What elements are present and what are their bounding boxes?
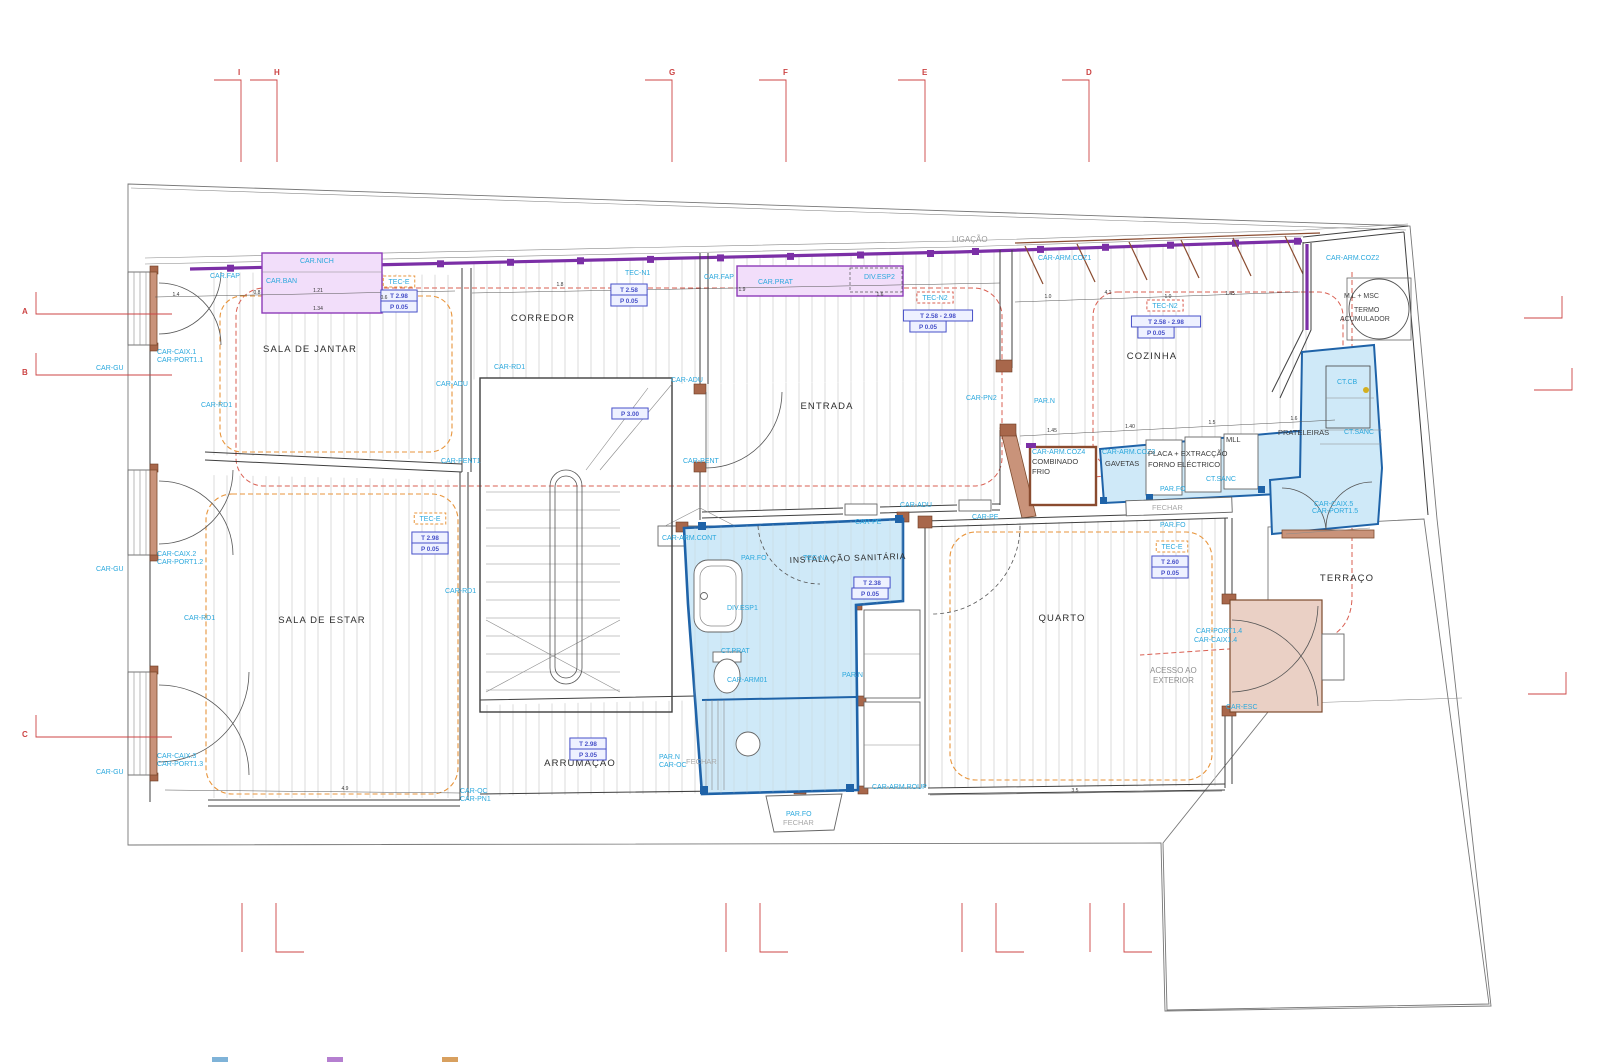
annotation-label: PRATELEIRAS <box>1278 428 1329 437</box>
annotation-label: CAR-ADU <box>900 502 932 509</box>
room-label-cozinha: COZINHA <box>1127 351 1177 362</box>
annotation-label: ACESSO AO <box>1150 666 1197 675</box>
annotation-label: CAR-OC <box>659 762 687 769</box>
annotation-label: CAR-RD1 <box>201 402 232 409</box>
annotation-label: CT.CB <box>1337 379 1358 386</box>
annotation-label: CAR-PE <box>972 514 999 521</box>
dimension-label: 1.6 <box>877 292 884 298</box>
annotation-label: CAR-CAIX1.4 <box>1194 637 1237 644</box>
grid-marker-letter: I <box>238 68 240 77</box>
annotation-label: PAR.FO <box>741 555 767 562</box>
annotation-label: TERMO <box>1354 307 1380 314</box>
annotation-label: CAR-RD1 <box>445 588 476 595</box>
dimension-label: 1.6 <box>1291 416 1298 422</box>
legend-color-chip <box>327 1057 343 1062</box>
boxed-label: P 0.05 <box>620 298 639 305</box>
room-label-corredor: CORREDOR <box>511 313 575 324</box>
annotation-label: DIV.ESP2 <box>864 274 895 281</box>
boxed-label: TEC-E <box>389 279 410 286</box>
dimension-label: 1.9 <box>739 287 746 293</box>
grid-marker-letter: B <box>22 368 28 377</box>
annotation-label: CAR-PE <box>855 519 882 526</box>
annotation-label: LIGAÇÃO <box>952 235 988 244</box>
dimension-label: 1.4 <box>173 292 180 298</box>
annotation-label: CAR-ADU <box>671 377 703 384</box>
room-label-sala-de-jantar: SALA DE JANTAR <box>263 344 357 355</box>
annotation-label: DIV.ESP1 <box>727 605 758 612</box>
boxed-label: T 2.38 <box>863 580 881 587</box>
dimension-label: 4.9 <box>342 786 349 792</box>
dimension-label: 1.45 <box>1225 291 1235 297</box>
boxed-label: T 2.98 <box>390 293 408 300</box>
legend-color-chip <box>212 1057 228 1062</box>
floor-plan-drawing: SALA DE JANTAR CORREDOR ENTRADA COZINHA … <box>0 0 1600 1063</box>
annotation-label: CAR-ARM01 <box>727 677 768 684</box>
boxed-label: P 0.05 <box>861 591 880 598</box>
annotation-label: CT.SANC <box>1206 476 1236 483</box>
dimension-label: 1.45 <box>1047 428 1057 434</box>
legend-color-chip <box>442 1057 458 1062</box>
boxed-label: P 3.00 <box>621 411 640 418</box>
room-label-quarto: QUARTO <box>1039 613 1086 624</box>
annotation-label: CAR.PRAT <box>758 279 794 286</box>
annotation-label: CAR-ARM.ROUP <box>872 784 927 791</box>
room-label-terraco: TERRAÇO <box>1320 573 1374 584</box>
annotation-label: CAR.FAP <box>210 273 240 280</box>
annotation-label: FECHAR <box>1152 503 1183 512</box>
dimension-label: 1.34 <box>313 306 323 312</box>
annotation-label: TEC-N1 <box>803 555 828 562</box>
boxed-label: T 2.58 <box>620 287 638 294</box>
annotation-label: CT.SANC <box>1344 429 1374 436</box>
annotation-label: CAR-PORT1.1 <box>157 357 203 364</box>
annotation-label: CAR-RD1 <box>184 615 215 622</box>
dimension-label: 1.21 <box>313 288 323 294</box>
dimension-label: 1.40 <box>1125 424 1135 430</box>
annotation-label: CAR-PN2 <box>966 395 997 402</box>
grid-marker-letter: D <box>1086 68 1092 77</box>
annotation-label: CAR-PORT1.5 <box>1312 508 1358 515</box>
dimension-label: 4.1 <box>1105 290 1112 296</box>
annotation-label: PAR.FO <box>786 811 812 818</box>
annotation-label: CAR-ARM.COZ2 <box>1326 255 1379 262</box>
grid-marker-letter: A <box>22 307 28 316</box>
annotation-label: PAR.N <box>842 672 863 679</box>
annotation-label: CAR-GU <box>96 365 124 372</box>
annotation-label: EXTERIOR <box>1153 676 1194 685</box>
grid-marker-letter: C <box>22 730 28 739</box>
annotation-label: CAR-ARM.COZ4 <box>1032 449 1085 456</box>
floor-plan-sheet: SALA DE JANTAR CORREDOR ENTRADA COZINHA … <box>0 0 1600 1063</box>
annotation-label: CT.PRAT <box>721 648 750 655</box>
annotation-label: ACUMULADOR <box>1340 316 1390 323</box>
annotation-label: CAR-CAIX.2 <box>157 551 196 558</box>
room-label-sala-de-estar: SALA DE ESTAR <box>278 615 366 626</box>
annotation-label: CAR-RD1 <box>494 364 525 371</box>
boxed-label: TEC-N2 <box>922 295 947 302</box>
boxed-label: TEC-E <box>1162 544 1183 551</box>
annotation-label: CAR-PENT1 <box>441 458 481 465</box>
annotation-label: CAR-ARM.CONT <box>662 535 717 542</box>
annotation-label: CAR-ESC <box>1226 704 1258 711</box>
boxed-label: T 2.60 <box>1161 559 1179 566</box>
annotation-label: CAR-ARM.COZ1 <box>1038 255 1091 262</box>
boxed-label: P 0.05 <box>1161 570 1180 577</box>
basin <box>736 732 760 756</box>
dimension-label: 1.0 <box>1045 294 1052 300</box>
annotation-label: PAR.N <box>1034 398 1055 405</box>
dimension-label: 0.8 <box>254 290 261 296</box>
dimension-label: 1.0 <box>1165 294 1172 300</box>
dimension-label: 0.6 <box>381 295 388 301</box>
annotation-label: PAR.FO <box>1160 486 1186 493</box>
grid-marker-letter: G <box>669 68 675 77</box>
boxed-label: T 2.98 <box>579 741 597 748</box>
grid-marker-letter: E <box>922 68 928 77</box>
room-label-entrada: ENTRADA <box>800 401 853 412</box>
boxed-label: T 2.98 <box>421 535 439 542</box>
boxed-label: P 0.05 <box>1147 330 1166 337</box>
annotation-label: CAR-GU <box>96 566 124 573</box>
annotation-label: CAR-OC <box>460 788 488 795</box>
annotation-label: M.L + MSC <box>1344 293 1379 300</box>
annotation-label: CAR-ADU <box>436 381 468 388</box>
annotation-label: CAR-CAIX.3 <box>157 753 196 760</box>
annotation-label: CAR-GU <box>96 769 124 776</box>
annotation-label: CAR-CAIX.1 <box>157 349 196 356</box>
annotation-label: GAVETAS <box>1105 459 1139 468</box>
annotation-label: CAR-PORT1.2 <box>157 559 203 566</box>
annotation-label: COMBINADO <box>1032 457 1078 466</box>
annotation-label: MLL <box>1226 435 1241 444</box>
annotation-label: CAR-PN1 <box>460 796 491 803</box>
annotation-label: CAR-PORT1.3 <box>157 761 203 768</box>
annotation-label: FRIO <box>1032 467 1050 476</box>
annotation-label: FORNO ELÉCTRICO <box>1148 460 1220 469</box>
dimension-label: 1.5 <box>1209 420 1216 426</box>
wc <box>714 659 740 693</box>
annotation-label: PAR.N <box>659 754 680 761</box>
annotation-label: CAR-CAIX.5 <box>1314 501 1353 508</box>
annotation-label: PLACA + EXTRACÇÃO <box>1148 449 1228 458</box>
annotation-label: TEC-N1 <box>625 270 650 277</box>
annotation-label: FECHAR <box>783 818 814 827</box>
boxed-label: P 0.05 <box>919 324 938 331</box>
annotation-label: FECHAR <box>686 757 717 766</box>
dimension-label: 1.8 <box>557 282 564 288</box>
annotation-label: CAR.FAP <box>704 274 734 281</box>
boxed-label: P 0.05 <box>390 304 409 311</box>
annotation-label: PAR.FO <box>1160 522 1186 529</box>
boxed-label: T 2.58 - 2.98 <box>920 313 956 320</box>
grid-marker-letter: F <box>783 68 788 77</box>
boxed-label: P 3.05 <box>579 752 598 759</box>
boxed-label: TEC-N2 <box>1152 303 1177 310</box>
annotation-label: CAR-PENT <box>683 458 720 465</box>
annotation-label: CAR-PORT1.4 <box>1196 628 1242 635</box>
grid-marker-letter: H <box>274 68 280 77</box>
boxed-label: P 0.05 <box>421 546 440 553</box>
boxed-label: T 2.58 - 2.98 <box>1148 319 1184 326</box>
annotation-label: CAR.BAN <box>266 278 297 285</box>
annotation-label: CAR.NICH <box>300 258 334 265</box>
dimension-label: 3.5 <box>1072 788 1079 794</box>
boxed-label: TEC-E <box>420 516 441 523</box>
